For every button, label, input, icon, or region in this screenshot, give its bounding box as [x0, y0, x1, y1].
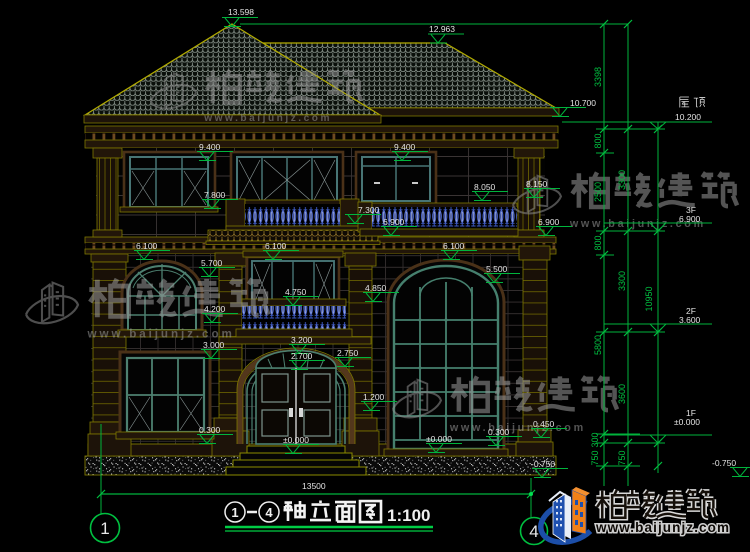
svg-text:±0.000: ±0.000: [426, 434, 452, 444]
svg-text:±0.000: ±0.000: [283, 435, 309, 445]
svg-text:2500: 2500: [593, 182, 603, 202]
svg-text:1:100: 1:100: [387, 506, 430, 525]
svg-text:2.700: 2.700: [291, 351, 313, 361]
svg-text:6.900: 6.900: [538, 217, 560, 227]
svg-text:1.200: 1.200: [363, 392, 385, 402]
svg-text:3.200: 3.200: [291, 335, 313, 345]
svg-text:0.300: 0.300: [199, 425, 221, 435]
svg-text:12.963: 12.963: [429, 24, 455, 34]
svg-text:4.200: 4.200: [204, 304, 226, 314]
svg-text:750: 750: [590, 450, 600, 465]
svg-text:3600: 3600: [617, 384, 627, 404]
svg-text:5.700: 5.700: [201, 258, 223, 268]
svg-text:1: 1: [231, 505, 238, 520]
svg-text:5.500: 5.500: [486, 264, 508, 274]
svg-text:3300: 3300: [617, 271, 627, 291]
svg-text:8.150: 8.150: [526, 179, 548, 189]
svg-text:0.450: 0.450: [533, 419, 555, 429]
svg-text:10.200: 10.200: [675, 112, 701, 122]
svg-text:8.050: 8.050: [474, 182, 496, 192]
svg-text:5800: 5800: [593, 335, 603, 355]
svg-text:6.100: 6.100: [265, 241, 287, 251]
svg-text:300: 300: [590, 432, 600, 447]
svg-text:6.100: 6.100: [136, 241, 158, 251]
svg-text:www.baijunjz.com: www.baijunjz.com: [595, 520, 730, 535]
svg-text:6.100: 6.100: [443, 241, 465, 251]
svg-text:800: 800: [593, 133, 603, 148]
svg-text:4.850: 4.850: [365, 283, 387, 293]
svg-text:3398: 3398: [593, 67, 603, 87]
svg-text:9.400: 9.400: [394, 142, 416, 152]
svg-text:9.400: 9.400: [199, 142, 221, 152]
svg-text:6.900: 6.900: [383, 217, 405, 227]
svg-text:1: 1: [100, 519, 109, 538]
svg-text:2.750: 2.750: [337, 348, 359, 358]
svg-text:-0.750: -0.750: [531, 459, 555, 469]
svg-text:-0.750: -0.750: [712, 458, 736, 468]
svg-text:±0.000: ±0.000: [674, 417, 700, 427]
svg-text:6.900: 6.900: [679, 214, 701, 224]
svg-text:750: 750: [617, 450, 627, 465]
svg-text:4: 4: [529, 522, 538, 541]
svg-text:800: 800: [593, 235, 603, 250]
svg-text:3.600: 3.600: [679, 315, 701, 325]
svg-text:7.800: 7.800: [204, 190, 226, 200]
svg-text:3.000: 3.000: [203, 340, 225, 350]
svg-text:10950: 10950: [644, 286, 654, 311]
svg-text:13500: 13500: [302, 481, 326, 491]
svg-text:7.300: 7.300: [358, 205, 380, 215]
svg-text:4: 4: [265, 505, 273, 520]
svg-text:4.750: 4.750: [285, 287, 307, 297]
svg-text:13.598: 13.598: [228, 7, 254, 17]
svg-text:3300: 3300: [617, 170, 627, 190]
svg-text:10.700: 10.700: [570, 98, 596, 108]
svg-text:0.300: 0.300: [488, 427, 510, 437]
